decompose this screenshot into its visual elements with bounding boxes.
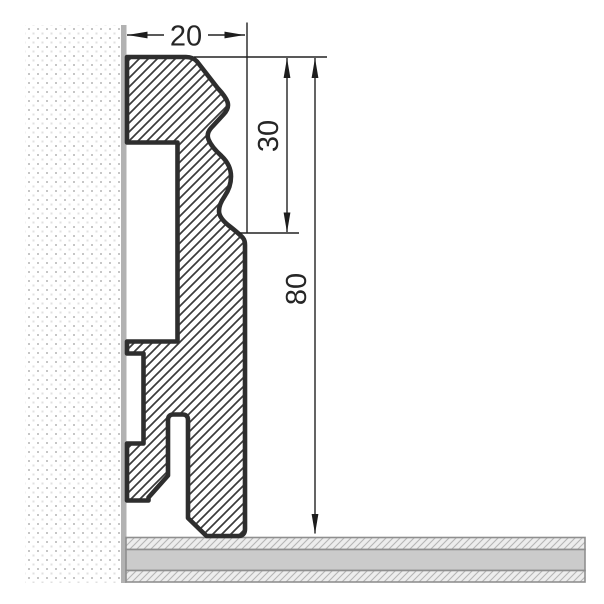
floor-top-screed-layer <box>126 538 585 550</box>
dim-total-height-value: 80 <box>281 273 313 305</box>
dimension-arrow-right-icon <box>225 32 245 39</box>
floor-middle-layer <box>126 550 585 571</box>
dimension-arrow-down-icon <box>312 514 319 534</box>
technical-drawing-canvas: 20 30 80 <box>0 0 604 604</box>
dim-upper-height: 30 <box>253 58 290 233</box>
skirting-profile-section <box>127 57 245 536</box>
dim-width: 20 <box>127 21 245 53</box>
dimension-arrow-down-icon <box>284 213 291 233</box>
floor-bottom-screed-layer <box>126 571 585 583</box>
dimension-arrow-up-icon <box>284 58 291 78</box>
floor-layers <box>126 538 585 583</box>
dimension-arrow-up-icon <box>312 58 319 78</box>
skirting-profile-drawing: 20 30 80 <box>0 0 604 604</box>
dim-width-value: 20 <box>170 21 202 53</box>
wall-plaster-area <box>25 25 121 583</box>
dimension-arrow-left-icon <box>128 32 148 39</box>
dim-upper-height-value: 30 <box>253 120 285 152</box>
